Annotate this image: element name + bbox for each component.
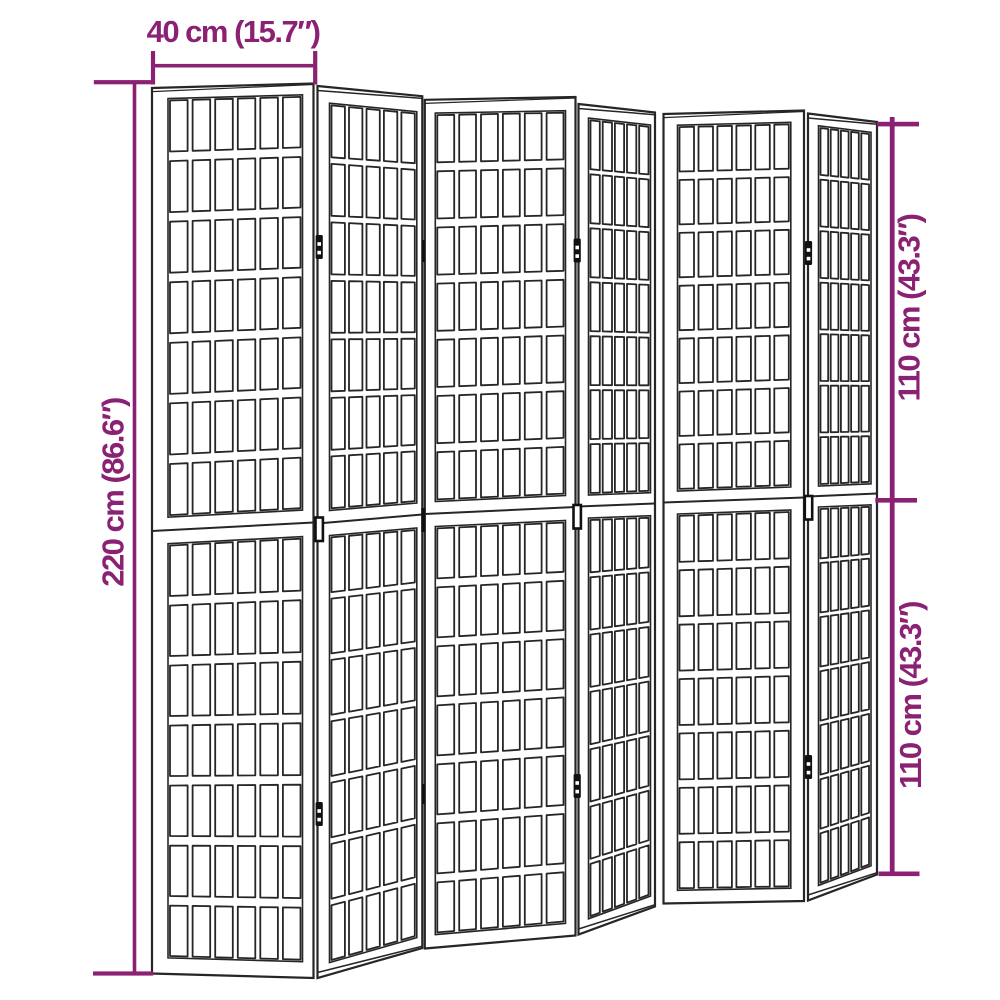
svg-text:220 cm (86.6″): 220 cm (86.6″) [96, 398, 131, 587]
svg-text:40 cm (15.7″): 40 cm (15.7″) [147, 14, 320, 49]
svg-text:110 cm (43.3″): 110 cm (43.3″) [893, 602, 928, 789]
svg-text:110 cm (43.3″): 110 cm (43.3″) [892, 214, 927, 401]
